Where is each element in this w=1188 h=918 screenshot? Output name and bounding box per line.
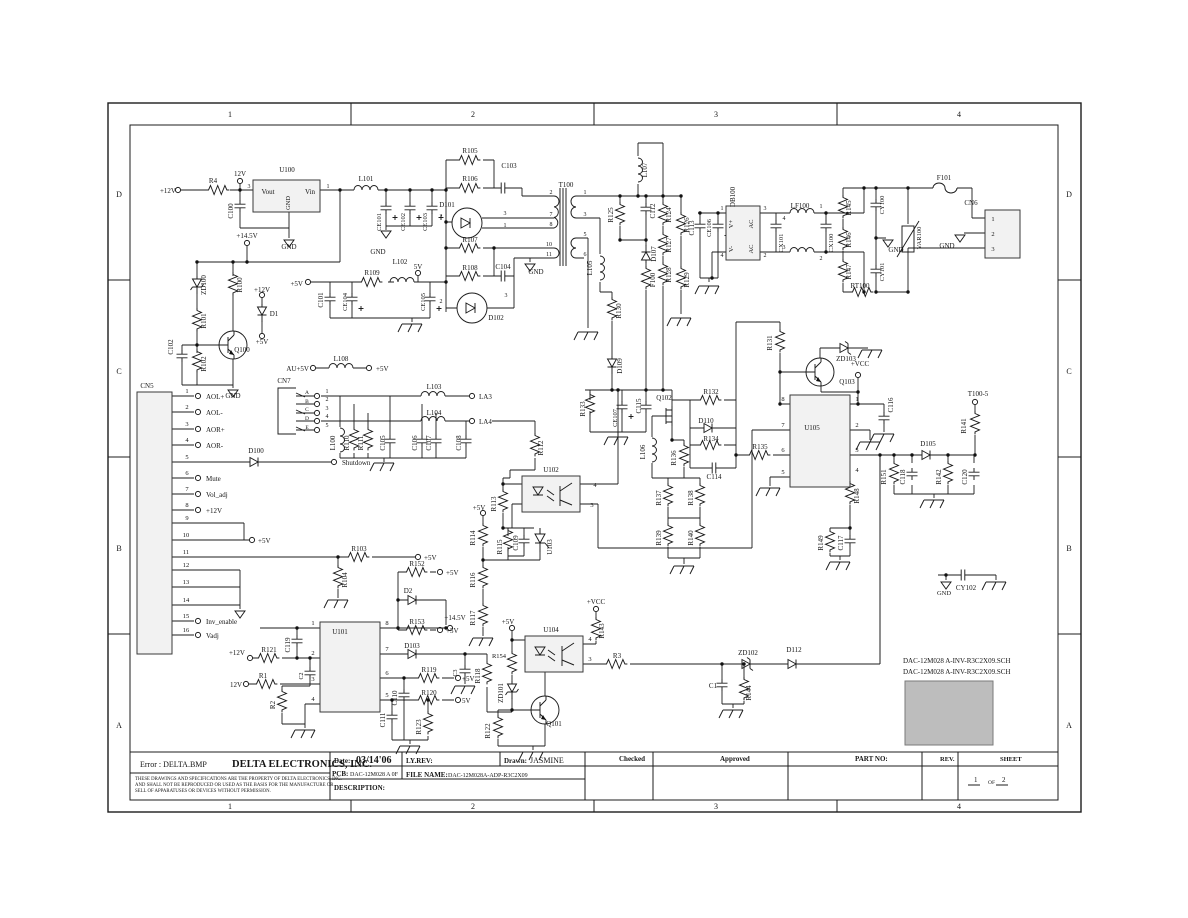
label-ce101: CE101 bbox=[376, 213, 383, 231]
label-r147: R147 bbox=[845, 264, 853, 280]
label-u103: U103 bbox=[546, 539, 554, 555]
label-c103: C103 bbox=[501, 162, 517, 170]
label-r124: R124 bbox=[665, 207, 673, 223]
label-u101-p7: 7 bbox=[385, 646, 389, 653]
label-gnd-cy: GND bbox=[888, 246, 903, 254]
label-cn5: CN5 bbox=[140, 382, 154, 390]
label-cn5-p4: 4 bbox=[185, 437, 189, 444]
label-u102-p3: 3 bbox=[590, 502, 593, 509]
label-db100-vm: V- bbox=[728, 246, 735, 252]
label-grid-bot-1: 1 bbox=[228, 802, 232, 811]
label-c112: C112 bbox=[649, 203, 657, 218]
label-sig-voladj: Vol_adj bbox=[206, 491, 228, 499]
label-cn7-p3: 3 bbox=[326, 406, 329, 412]
label-grid-right-a: A bbox=[1066, 721, 1072, 730]
label-cn6-p1: 1 bbox=[991, 216, 994, 223]
label-r143: R143 bbox=[598, 623, 606, 639]
label-sig-5v-b: +5V bbox=[424, 554, 437, 562]
label-zd100: ZD100 bbox=[200, 275, 208, 295]
label-p5v-d1: +5V bbox=[256, 338, 269, 346]
label-cn6: CN6 bbox=[964, 199, 978, 207]
schematic-canvas: DAC-12M028 A-INV-R3C2X09.SCH DAC-12M028 … bbox=[0, 0, 1188, 918]
titleblock-drawn: JASMINE bbox=[530, 756, 564, 765]
label-cn5-p10: 10 bbox=[183, 532, 190, 539]
label-grid-top-4: 4 bbox=[957, 110, 961, 119]
label-c1: C1 bbox=[709, 682, 718, 690]
u101-body bbox=[320, 622, 380, 712]
titleblock-company: DELTA ELECTRONICS, INC. bbox=[232, 759, 372, 770]
label-cn5-p16: 16 bbox=[183, 627, 190, 634]
label-cn5-p11: 11 bbox=[183, 549, 189, 556]
label-cy101: CY101 bbox=[879, 263, 886, 282]
u102-body bbox=[522, 476, 580, 512]
titleblock-file: DAC-12M028A-ADP-R3C2X09 bbox=[448, 773, 528, 779]
label-c118: C118 bbox=[899, 469, 907, 484]
label-r105: R105 bbox=[462, 147, 478, 155]
label-lf100-p4: 4 bbox=[783, 216, 786, 222]
titleblock-desc-label: DESCRIPTION: bbox=[334, 784, 385, 792]
label-gnd-ce: GND bbox=[370, 248, 385, 256]
label-grid-right-c: C bbox=[1066, 367, 1071, 376]
label-d102-pin3: 3 bbox=[505, 293, 508, 299]
label-sig-aorm: AOR- bbox=[206, 442, 224, 450]
label-u101-p2: 2 bbox=[311, 650, 314, 657]
label-c3: C3 bbox=[453, 669, 459, 676]
label-lf100-p2: 2 bbox=[820, 256, 823, 262]
label-cn5-p2: 2 bbox=[185, 404, 188, 411]
label-c110: C110 bbox=[391, 690, 399, 705]
label-t100-p11: 11 bbox=[546, 252, 552, 258]
label-d101: D101 bbox=[439, 201, 455, 209]
label-c2: C2 bbox=[299, 672, 305, 679]
titleblock-sheet-num: 1 bbox=[974, 776, 978, 784]
label-sig-shutdown: Shutdown bbox=[342, 459, 371, 467]
titleblock-rev: REV. bbox=[940, 756, 955, 763]
cn7-jack-body bbox=[278, 388, 305, 434]
wires-t100-primary bbox=[530, 143, 985, 436]
label-t100-p8: 8 bbox=[550, 222, 553, 228]
label-cn5-p6: 6 bbox=[185, 470, 189, 477]
label-gnd-cy102: GND bbox=[937, 590, 951, 597]
label-r139: R139 bbox=[655, 530, 663, 546]
title-block: Error : DELTA.BMP DELTA ELECTRONICS, INC… bbox=[130, 752, 1058, 800]
label-d110: D110 bbox=[698, 417, 714, 425]
titleblock-partno: PART NO: bbox=[855, 755, 888, 763]
label-p5v-r152: +5V bbox=[446, 569, 459, 577]
label-u100-pin1: 1 bbox=[327, 184, 330, 190]
label-t100-p2: 2 bbox=[550, 190, 553, 196]
titleblock-sheet: SHEET bbox=[1000, 756, 1022, 763]
titleblock-pcb: DAC-12M028 A 0F bbox=[350, 772, 399, 778]
label-grid-top-3: 3 bbox=[714, 110, 718, 119]
label-r132: R132 bbox=[703, 388, 719, 396]
titleblock-drawn-label: Drawn: bbox=[504, 757, 527, 765]
label-r108: R108 bbox=[462, 264, 478, 272]
label-cn7-d: D bbox=[305, 416, 309, 422]
label-sig-5v-a: +5V bbox=[258, 537, 271, 545]
titleblock-legal-1: THESE DRAWINGS AND SPECIFICATIONS ARE TH… bbox=[135, 777, 342, 782]
label-net5v-r120: 5V bbox=[462, 697, 471, 705]
label-r121: R121 bbox=[261, 646, 277, 654]
label-cn7-p5: 5 bbox=[326, 423, 329, 429]
label-sig-la3: LA3 bbox=[479, 393, 492, 401]
label-r112: R112 bbox=[537, 440, 545, 455]
label-c101: C101 bbox=[317, 292, 325, 308]
label-l104: L104 bbox=[427, 409, 442, 417]
label-t100-5: T100-5 bbox=[968, 390, 989, 398]
label-sig-vadj: Vadj bbox=[206, 632, 219, 640]
label-r103: R103 bbox=[351, 545, 367, 553]
label-lf100-p3: 3 bbox=[783, 245, 786, 251]
label-r120: R120 bbox=[421, 689, 437, 697]
d101-diode-glyph bbox=[461, 218, 470, 228]
t100-core bbox=[560, 188, 566, 266]
label-ce105: CE105 bbox=[420, 293, 427, 311]
label-u105-p4: 4 bbox=[855, 467, 859, 474]
titleblock-pcb-label: PCB: bbox=[332, 770, 348, 778]
label-zd102: ZD102 bbox=[738, 649, 758, 657]
label-r130: R130 bbox=[615, 303, 623, 319]
label-u100-vin: Vin bbox=[305, 188, 316, 196]
titleblock-lyrev-label: LY.REV: bbox=[406, 757, 433, 765]
label-r122: R122 bbox=[484, 723, 492, 739]
label-d102-pin2: 2 bbox=[440, 299, 443, 305]
label-u101-p5: 5 bbox=[385, 692, 388, 699]
label-u105-p2: 2 bbox=[855, 422, 858, 429]
label-q101: Q101 bbox=[546, 720, 562, 728]
label-rt100: RT100 bbox=[850, 282, 870, 290]
label-db100-p2: 2 bbox=[764, 253, 767, 259]
label-p14v5: +14.5V bbox=[236, 232, 257, 240]
label-u101-p3: 3 bbox=[311, 676, 314, 683]
label-grid-bot-2: 2 bbox=[471, 802, 475, 811]
label-r128: R128 bbox=[665, 267, 673, 283]
label-sig-aorp: AOR+ bbox=[206, 426, 225, 434]
label-p14v5-u101: +14.5V bbox=[444, 614, 465, 622]
label-u105-p8: 8 bbox=[781, 396, 784, 403]
label-grid-left-a: A bbox=[116, 721, 122, 730]
label-t100-p6: 6 bbox=[584, 252, 587, 258]
label-cn5-p1: 1 bbox=[185, 388, 188, 395]
label-r119: R119 bbox=[422, 666, 437, 674]
label-r100: R100 bbox=[236, 277, 244, 293]
label-net12v-u101: 12V bbox=[230, 681, 242, 689]
label-r145: R145 bbox=[845, 200, 853, 216]
label-ce106: CE106 bbox=[706, 218, 713, 237]
label-p5v-rail: +5V bbox=[290, 280, 303, 288]
label-l101: L101 bbox=[359, 175, 374, 183]
label-cn5-p5: 5 bbox=[185, 454, 188, 461]
label-r113: R113 bbox=[490, 496, 498, 511]
label-grid-left-c: C bbox=[116, 367, 121, 376]
label-l105: L105 bbox=[586, 260, 594, 275]
label-p12v-in: +12V bbox=[160, 187, 176, 195]
label-u105-p7: 7 bbox=[781, 422, 785, 429]
schematic-page: DAC-12M028 A-INV-R3C2X09.SCH DAC-12M028 … bbox=[0, 0, 1188, 918]
label-cy102: CY102 bbox=[956, 584, 977, 592]
label-c102: C102 bbox=[167, 339, 175, 355]
label-c120: C120 bbox=[961, 469, 969, 485]
label-grid-top-2: 2 bbox=[471, 110, 475, 119]
label-t100-p3: 3 bbox=[584, 212, 587, 218]
titleblock-legal-2: AND SHALL NOT BE REPRODUCED OR USED AS T… bbox=[135, 783, 334, 788]
label-l108: L108 bbox=[334, 355, 349, 363]
q102-mosfet bbox=[666, 406, 672, 426]
label-u101-p8: 8 bbox=[385, 620, 388, 627]
label-r110: R110 bbox=[343, 435, 351, 450]
t100-secondary-winding bbox=[571, 196, 576, 258]
label-net-12v: 12V bbox=[234, 170, 246, 178]
label-sig-aolm: AOL- bbox=[206, 409, 223, 417]
label-p12v-u101: +12V bbox=[229, 649, 245, 657]
subsheet-inset: DAC-12M028 A-INV-R3C2X09.SCH DAC-12M028 … bbox=[903, 657, 1010, 745]
label-sig-au5v: AU+5V bbox=[286, 365, 309, 373]
label-grid-right-d: D bbox=[1066, 190, 1072, 199]
label-r115: R115 bbox=[496, 539, 504, 554]
label-net-5v: 5V bbox=[414, 263, 423, 271]
label-cn5-p7: 7 bbox=[185, 486, 189, 493]
label-l106: L106 bbox=[639, 444, 647, 459]
label-ce107: CE107 bbox=[612, 408, 619, 427]
label-zd101: ZD101 bbox=[497, 683, 505, 703]
label-c117: C117 bbox=[837, 535, 845, 550]
label-u102: U102 bbox=[543, 466, 559, 474]
label-sig-la4: LA4 bbox=[479, 418, 492, 426]
label-u100: U100 bbox=[279, 166, 295, 174]
label-r125: R125 bbox=[607, 207, 615, 223]
titleblock-error-text: Error : DELTA.BMP bbox=[140, 760, 207, 769]
label-cn7-a: A bbox=[305, 390, 309, 396]
cn5-body bbox=[137, 392, 172, 654]
label-r152: R152 bbox=[409, 560, 425, 568]
label-cn5-p15: 15 bbox=[183, 613, 190, 620]
label-u101-p4: 4 bbox=[311, 696, 315, 703]
t100-primary-winding bbox=[554, 196, 559, 258]
label-cn7-p4: 4 bbox=[326, 414, 329, 420]
label-db100: DB100 bbox=[729, 186, 737, 207]
label-r129: R129 bbox=[683, 272, 691, 288]
label-r118: R118 bbox=[474, 668, 482, 683]
label-cn5-p12: 12 bbox=[183, 562, 190, 569]
label-p12v-d1: +12V bbox=[254, 286, 270, 294]
label-q102: Q102 bbox=[656, 394, 672, 402]
label-u101: U101 bbox=[332, 628, 348, 636]
label-db100-p1: 1 bbox=[721, 206, 724, 212]
label-d105: D105 bbox=[920, 440, 936, 448]
wires-u102-u103 bbox=[483, 390, 790, 636]
label-l100: L100 bbox=[329, 435, 337, 450]
label-r149: R149 bbox=[817, 535, 825, 551]
label-r2: R2 bbox=[269, 700, 277, 709]
label-r114: R114 bbox=[469, 530, 477, 545]
label-u105-p6: 6 bbox=[781, 447, 785, 454]
label-l107: L107 bbox=[641, 162, 649, 177]
titleblock-legal-3: SELL OF APPARATUSES OR DEVICES WITHOUT P… bbox=[135, 789, 271, 794]
label-r101: R101 bbox=[200, 313, 208, 329]
label-r153: R153 bbox=[409, 618, 425, 626]
label-cn7-c: C bbox=[305, 407, 309, 413]
label-t100-p5: 5 bbox=[584, 232, 587, 238]
d102-body bbox=[457, 293, 487, 323]
label-grid-left-d: D bbox=[116, 190, 122, 199]
label-d112: D112 bbox=[786, 646, 802, 654]
label-cy100: CY100 bbox=[879, 196, 886, 215]
label-c113: C113 bbox=[688, 220, 696, 235]
label-c106: C106 bbox=[411, 435, 419, 451]
label-r140: R140 bbox=[687, 530, 695, 546]
label-d2: D2 bbox=[404, 587, 413, 595]
label-r137: R137 bbox=[655, 490, 663, 506]
label-r104: R104 bbox=[341, 572, 349, 588]
label-r117: R117 bbox=[469, 610, 477, 625]
label-cn6-p2: 2 bbox=[991, 231, 994, 238]
label-ce103: CE103 bbox=[422, 213, 429, 231]
titleblock-checked: Checked bbox=[619, 755, 645, 763]
label-r134: R134 bbox=[703, 435, 719, 443]
label-cx100: CX100 bbox=[828, 234, 835, 253]
label-d102: D102 bbox=[488, 314, 504, 322]
label-u105: U105 bbox=[804, 424, 820, 432]
label-db100-p3: 3 bbox=[764, 206, 767, 212]
label-pvcc-u104: +VCC bbox=[587, 598, 606, 606]
label-t100: T100 bbox=[559, 181, 574, 189]
label-u105-p5: 5 bbox=[781, 469, 784, 476]
label-cn5-p13: 13 bbox=[183, 579, 190, 586]
label-r135: R135 bbox=[752, 443, 768, 451]
label-r142: R142 bbox=[935, 469, 943, 485]
label-cn7-b: B bbox=[305, 399, 309, 405]
label-d103: D103 bbox=[404, 642, 420, 650]
label-t100-p7: 7 bbox=[550, 212, 553, 218]
label-d1: D1 bbox=[270, 310, 279, 318]
label-cn7-p1: 1 bbox=[326, 389, 329, 395]
label-lf100: LF100 bbox=[791, 202, 810, 210]
label-d101-pin3: 3 bbox=[504, 211, 507, 217]
label-c107: C107 bbox=[425, 435, 433, 451]
label-r138: R138 bbox=[687, 490, 695, 506]
label-cn7: CN7 bbox=[277, 377, 291, 385]
label-r109: R109 bbox=[364, 269, 380, 277]
label-db100-ac2: AC bbox=[748, 244, 755, 253]
label-p5v-r153: +5V bbox=[446, 627, 459, 635]
label-grid-bot-3: 3 bbox=[714, 802, 718, 811]
label-r146: R146 bbox=[845, 232, 853, 248]
label-l103: L103 bbox=[427, 383, 442, 391]
label-d109: D109 bbox=[616, 358, 624, 374]
label-p5v-r119: +5V bbox=[462, 675, 475, 683]
inset-line2: DAC-12M028 A-INV-R3C2X09.SCH bbox=[903, 668, 1010, 676]
label-r154: R154 bbox=[492, 653, 507, 660]
cn6-body bbox=[985, 210, 1020, 258]
label-p5v-u104: +5V bbox=[502, 618, 515, 626]
label-c109: C109 bbox=[512, 535, 520, 551]
inset-line1: DAC-12M028 A-INV-R3C2X09.SCH bbox=[903, 657, 1010, 665]
label-c100: C100 bbox=[227, 203, 235, 219]
label-r116: R116 bbox=[469, 572, 477, 587]
label-gnd-cn6: GND bbox=[939, 242, 954, 250]
label-c108: C108 bbox=[455, 435, 463, 451]
label-cn5-p3: 3 bbox=[185, 421, 188, 428]
label-sig-5v-l108: +5V bbox=[376, 365, 389, 373]
label-r133: R133 bbox=[579, 401, 587, 417]
label-c111: C111 bbox=[379, 712, 387, 727]
label-d100: D100 bbox=[248, 447, 264, 455]
label-var100: VAR100 bbox=[916, 227, 923, 250]
label-t100-p1: 1 bbox=[584, 190, 587, 196]
titleblock-file-label: FILE NAME: bbox=[406, 771, 448, 779]
label-db100-p4: 4 bbox=[721, 253, 724, 259]
label-u100-pin3: 3 bbox=[248, 184, 251, 190]
label-l102: L102 bbox=[393, 258, 408, 266]
label-f100: F100 bbox=[649, 272, 657, 287]
label-r141: R141 bbox=[960, 418, 968, 434]
label-r127: R127 bbox=[665, 237, 673, 253]
label-cn7-p2: 2 bbox=[326, 397, 329, 403]
label-c116: C116 bbox=[887, 397, 895, 412]
label-grid-top-1: 1 bbox=[228, 110, 232, 119]
titleblock-sheet-total: 2 bbox=[1002, 776, 1006, 784]
label-cn5-p8: 8 bbox=[185, 502, 188, 509]
label-r4: R4 bbox=[209, 177, 218, 185]
label-c115: C115 bbox=[635, 398, 643, 413]
label-u104: U104 bbox=[543, 626, 559, 634]
label-d107: D107 bbox=[650, 246, 658, 262]
label-sig-12v: +12V bbox=[206, 507, 222, 515]
titleblock-sheet-of: OF bbox=[988, 780, 995, 786]
label-c114: C114 bbox=[707, 473, 722, 481]
label-ce102: CE102 bbox=[400, 213, 407, 231]
label-r131: R131 bbox=[766, 335, 774, 351]
label-u104-p3: 3 bbox=[588, 656, 591, 663]
label-r107: R107 bbox=[462, 236, 478, 244]
label-db100-ac1: AC bbox=[748, 219, 755, 228]
label-r144: R144 bbox=[745, 685, 753, 701]
label-r111: R111 bbox=[357, 435, 365, 450]
label-cn6-p3: 3 bbox=[991, 246, 994, 253]
label-d101-pin1: 1 bbox=[504, 223, 507, 229]
label-pvcc-q103: +VCC bbox=[851, 360, 870, 368]
label-u100-vout: Vout bbox=[261, 188, 274, 196]
label-u104-p4: 4 bbox=[588, 636, 592, 643]
label-r3: R3 bbox=[613, 652, 622, 660]
label-r123: R123 bbox=[415, 719, 423, 735]
label-sig-inven: Inv_enable bbox=[206, 618, 237, 626]
label-r151: R151 bbox=[880, 469, 888, 485]
inset-gray-box bbox=[905, 681, 993, 745]
label-ce104: CE104 bbox=[342, 292, 349, 311]
label-u105-p1: 1 bbox=[855, 396, 858, 403]
label-r136: R136 bbox=[670, 450, 678, 466]
label-lf100-p1: 1 bbox=[820, 204, 823, 210]
label-c104: C104 bbox=[495, 263, 511, 271]
label-db100-vp: V+ bbox=[728, 219, 735, 228]
label-r1: R1 bbox=[259, 672, 268, 680]
label-grid-left-b: B bbox=[116, 544, 121, 553]
label-grid-bot-4: 4 bbox=[957, 802, 961, 811]
u105-body bbox=[790, 395, 850, 487]
label-u102-p4: 4 bbox=[593, 482, 597, 489]
titleblock-date: 03/14'06 bbox=[356, 755, 392, 766]
label-c105: C105 bbox=[379, 435, 387, 451]
label-r102: R102 bbox=[200, 356, 208, 372]
label-q103: Q103 bbox=[839, 378, 855, 386]
label-grid-right-b: B bbox=[1066, 544, 1071, 553]
label-sig-mute: Mute bbox=[206, 475, 221, 483]
label-u100-gnd: GND bbox=[285, 196, 292, 210]
label-f101: F101 bbox=[937, 174, 952, 182]
label-u101-p6: 6 bbox=[385, 670, 389, 677]
label-gnd-u100: GND bbox=[281, 243, 296, 251]
